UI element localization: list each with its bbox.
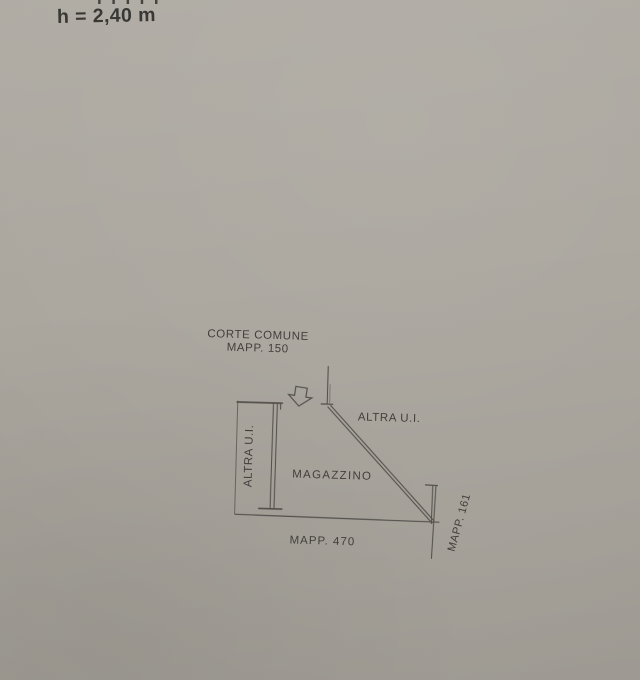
altra-ui-right-label: ALTRA U.I. — [358, 411, 421, 426]
left-wall-top-cap — [237, 402, 282, 403]
entrance-arrow-icon — [287, 386, 313, 408]
altra-ui-left-label: ALTRA U.I. — [242, 411, 258, 501]
mapp-470-label: MAPP. 470 — [282, 534, 362, 549]
top-wall-line-inner — [330, 385, 331, 403]
clipped-text-fragment-glyphs: IIIII — [97, 0, 167, 4]
left-boundary-line — [235, 401, 238, 514]
height-annotation: h = 2,40 m — [57, 4, 156, 29]
clipped-text-fragment: IIIII — [97, 0, 167, 4]
scanned-floor-plan-page: { "colors": { "paper": "#aba79f", "line"… — [0, 0, 640, 680]
magazzino-room-label: MAGAZZINO — [292, 469, 372, 484]
floor-plan-drawing: CORTE COMUNE MAPP. 150 ALTRA U.I. ALTRA … — [182, 316, 509, 580]
top-wall-line — [327, 367, 328, 404]
left-wall-inner-line — [274, 404, 277, 508]
left-wall-outer-line — [270, 404, 273, 508]
bottom-boundary-line — [235, 514, 439, 522]
left-wall-bottom-cap — [259, 508, 282, 509]
right-wall-inner-line — [431, 485, 432, 523]
